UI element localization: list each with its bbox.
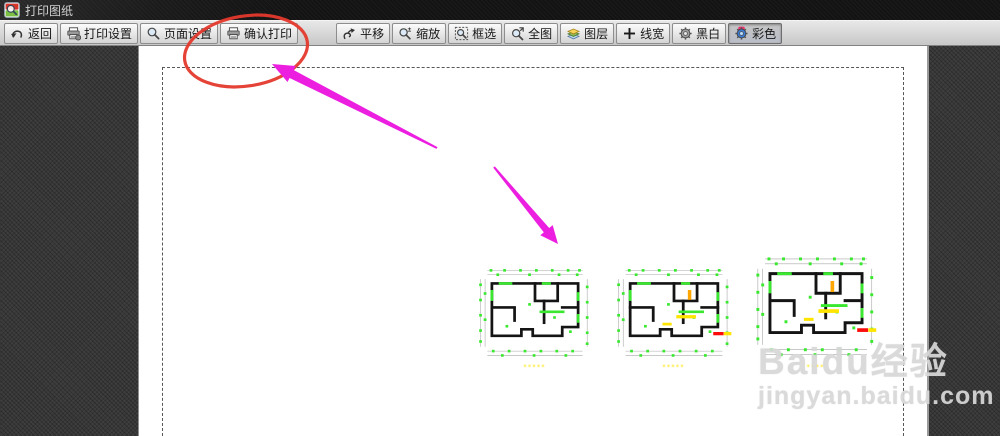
toolbar: 返回打印设置页面设置确认打印 平移±缩放框选全图图层线宽黑白彩色 — [0, 20, 1000, 46]
back-icon — [10, 26, 25, 41]
floor-plan-3: ▪▪▪▪ — [753, 254, 879, 362]
toolbar-button-back[interactable]: 返回 — [4, 23, 58, 44]
toolbar-button-print-settings[interactable]: 打印设置 — [60, 23, 138, 44]
toolbar-button-label: 页面设置 — [164, 25, 212, 42]
box-select-icon — [454, 26, 469, 41]
toolbar-button-zoom[interactable]: ±缩放 — [392, 23, 446, 44]
confirm-print-icon — [226, 26, 241, 41]
toolbar-button-box-select[interactable]: 框选 — [448, 23, 502, 44]
toolbar-button-line-width[interactable]: 线宽 — [616, 23, 670, 44]
toolbar-button-label: 缩放 — [416, 25, 440, 42]
toolbar-button-label: 图层 — [584, 25, 608, 42]
toolbar-button-full-view[interactable]: 全图 — [504, 23, 558, 44]
toolbar-button-label: 返回 — [28, 25, 52, 42]
toolbar-button-label: 线宽 — [640, 25, 664, 42]
toolbar-button-label: 平移 — [360, 25, 384, 42]
toolbar-button-label: 黑白 — [696, 25, 720, 42]
drawing-canvas[interactable]: Baidu经验 jingyan.baidu.com ▪▪▪▪▪ ▪▪▪ — [0, 46, 1000, 436]
toolbar-button-label: 全图 — [528, 25, 552, 42]
app-icon — [4, 2, 20, 18]
svg-text:±: ± — [408, 26, 412, 33]
toolbar-button-label: 确认打印 — [244, 25, 292, 42]
titlebar: 打印图纸 — [0, 0, 1000, 20]
toolbar-button-label: 框选 — [472, 25, 496, 42]
plan-title-label: ▪▪▪▪▪ — [476, 363, 594, 370]
toolbar-button-label: 打印设置 — [84, 25, 132, 42]
zoom-icon: ± — [398, 26, 413, 41]
toolbar-button-black-white[interactable]: 黑白 — [672, 23, 726, 44]
toolbar-button-color[interactable]: 彩色 — [728, 23, 782, 44]
plan-title-label: ▪▪▪▪▪ — [614, 363, 734, 370]
color-gear-icon — [734, 26, 749, 41]
bw-gear-icon — [678, 26, 693, 41]
plan-title-label: ▪▪▪▪ — [753, 363, 879, 370]
floor-plan-1: ▪▪▪▪▪ — [476, 266, 594, 362]
toolbar-button-page-setup[interactable]: 页面设置 — [140, 23, 218, 44]
layers-icon — [566, 26, 581, 41]
pan-icon — [342, 26, 357, 41]
toolbar-button-confirm-print[interactable]: 确认打印 — [220, 23, 298, 44]
toolbar-group-view: 平移±缩放框选全图图层线宽黑白彩色 — [336, 23, 784, 44]
toolbar-button-label: 彩色 — [752, 25, 776, 42]
floor-plan-2: ▪▪▪▪▪ — [614, 266, 734, 362]
toolbar-group-file: 返回打印设置页面设置确认打印 — [4, 23, 300, 44]
toolbar-button-pan[interactable]: 平移 — [336, 23, 390, 44]
full-view-icon — [510, 26, 525, 41]
toolbar-button-layers[interactable]: 图层 — [560, 23, 614, 44]
window-title: 打印图纸 — [25, 2, 73, 19]
print-settings-icon — [66, 26, 81, 41]
line-width-icon — [622, 26, 637, 41]
print-margin-dashed-border — [162, 67, 904, 436]
page-setup-icon — [146, 26, 161, 41]
